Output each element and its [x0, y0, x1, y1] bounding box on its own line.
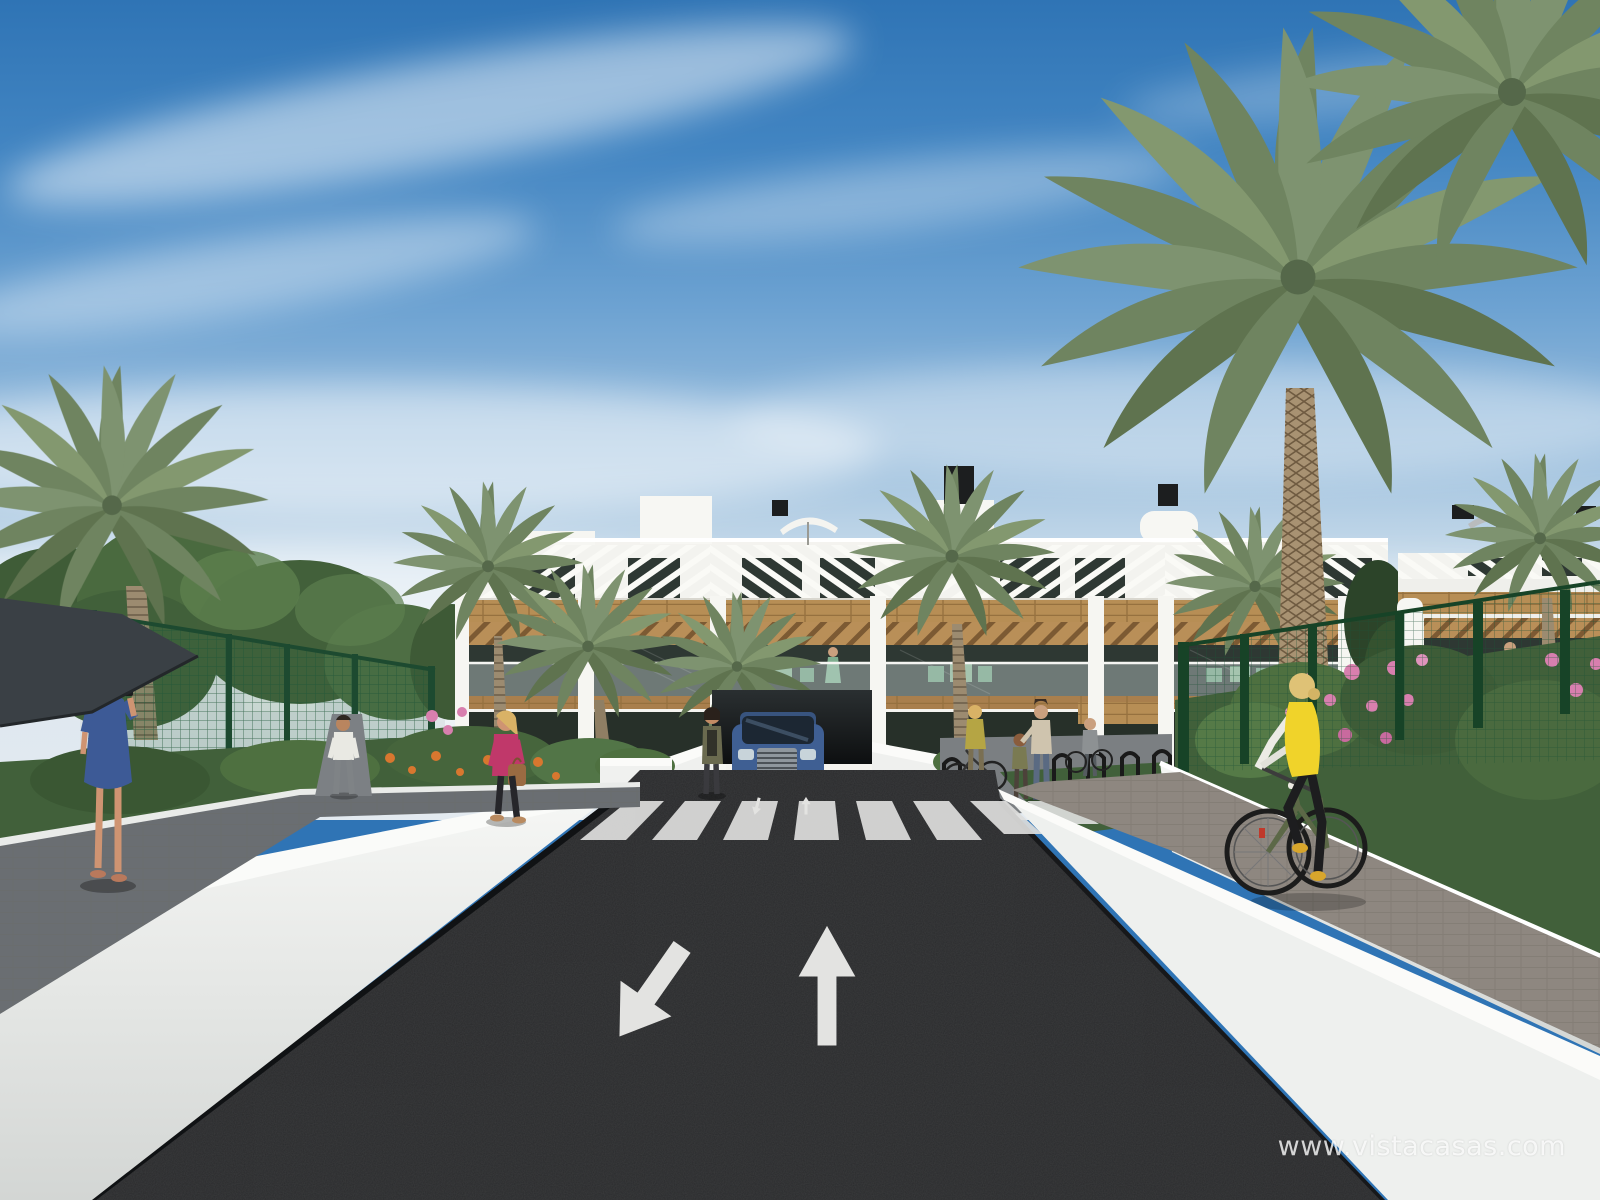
- roof-stair-tower: [640, 496, 712, 544]
- bike-tail-light: [1259, 828, 1265, 838]
- yellow-vest: [1285, 702, 1320, 777]
- watermark: www.vistacasas.com: [1278, 1131, 1566, 1162]
- render-image: www.vistacasas.com: [0, 0, 1600, 1200]
